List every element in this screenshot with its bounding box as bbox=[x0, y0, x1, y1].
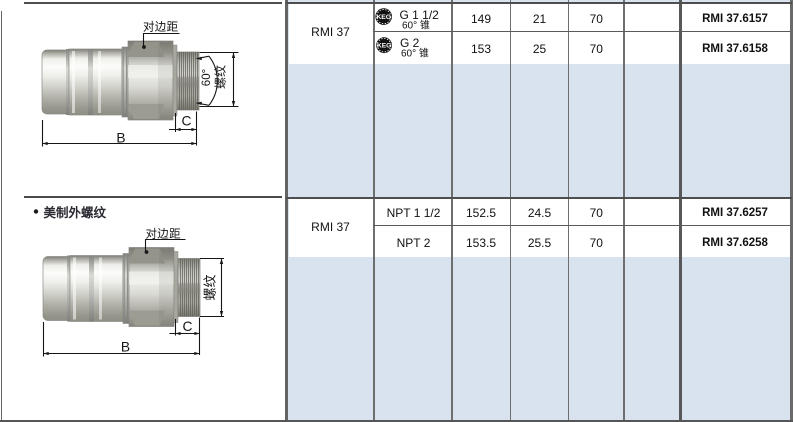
svg-text:螺纹: 螺纹 bbox=[202, 274, 217, 300]
svg-text:螺纹: 螺纹 bbox=[214, 65, 228, 89]
svg-text:C: C bbox=[183, 319, 193, 334]
svg-text:C: C bbox=[182, 114, 192, 129]
svg-text:60°: 60° bbox=[201, 69, 213, 86]
svg-text:对边距: 对边距 bbox=[146, 226, 182, 240]
svg-text:B: B bbox=[121, 340, 130, 355]
svg-text:对边距: 对边距 bbox=[143, 20, 179, 34]
svg-text:KEG: KEG bbox=[377, 43, 391, 50]
svg-text:B: B bbox=[116, 131, 125, 146]
svg-text:KEG: KEG bbox=[376, 14, 391, 21]
svg-text:美制外螺纹: 美制外螺纹 bbox=[44, 205, 107, 220]
